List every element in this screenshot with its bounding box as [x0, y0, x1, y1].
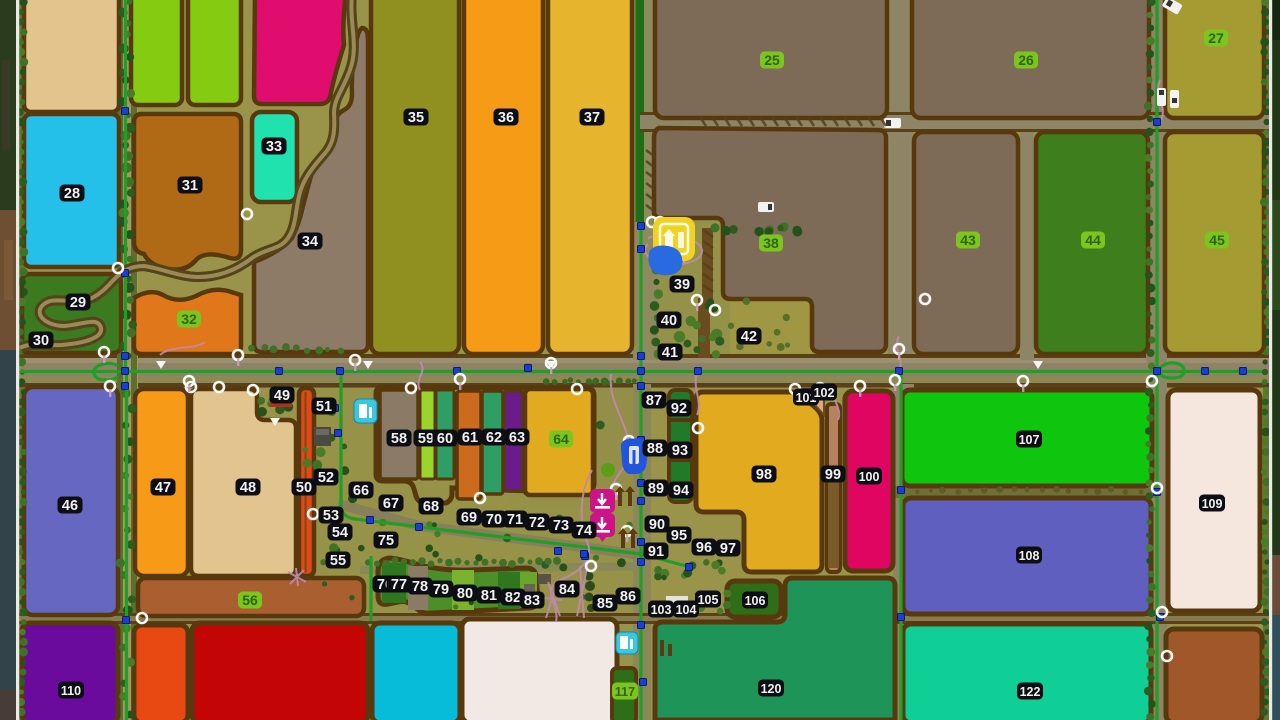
- svg-text:90: 90: [649, 517, 665, 533]
- svg-text:55: 55: [330, 553, 346, 569]
- svg-text:61: 61: [462, 430, 478, 446]
- svg-text:49: 49: [274, 388, 290, 404]
- svg-text:122: 122: [1020, 685, 1041, 699]
- svg-text:31: 31: [182, 178, 198, 194]
- svg-text:87: 87: [646, 393, 662, 409]
- svg-text:78: 78: [412, 579, 428, 595]
- svg-text:64: 64: [553, 431, 569, 447]
- svg-text:66: 66: [353, 483, 369, 499]
- svg-text:34: 34: [302, 234, 318, 250]
- svg-text:79: 79: [433, 582, 449, 598]
- svg-text:51: 51: [316, 399, 332, 415]
- svg-text:110: 110: [61, 684, 81, 698]
- svg-text:106: 106: [745, 594, 766, 608]
- svg-text:83: 83: [524, 593, 540, 609]
- svg-text:68: 68: [423, 499, 439, 515]
- svg-text:27: 27: [1208, 30, 1224, 46]
- svg-text:58: 58: [391, 431, 407, 447]
- svg-text:85: 85: [597, 596, 613, 612]
- svg-text:73: 73: [553, 518, 569, 534]
- svg-text:60: 60: [437, 431, 453, 447]
- svg-text:94: 94: [673, 483, 689, 499]
- svg-text:50: 50: [296, 480, 312, 496]
- svg-text:35: 35: [408, 110, 424, 126]
- svg-text:32: 32: [181, 311, 197, 327]
- svg-text:70: 70: [486, 512, 502, 528]
- svg-text:29: 29: [70, 295, 86, 311]
- svg-text:36: 36: [498, 110, 514, 126]
- svg-text:30: 30: [33, 333, 49, 349]
- svg-text:105: 105: [698, 593, 719, 607]
- svg-text:97: 97: [720, 541, 736, 557]
- svg-text:69: 69: [461, 510, 477, 526]
- svg-text:45: 45: [1209, 232, 1225, 248]
- svg-text:41: 41: [662, 345, 678, 361]
- svg-text:75: 75: [378, 533, 394, 549]
- svg-text:40: 40: [661, 313, 677, 329]
- svg-text:86: 86: [620, 589, 636, 605]
- svg-text:63: 63: [509, 430, 525, 446]
- svg-text:120: 120: [761, 682, 782, 696]
- svg-text:104: 104: [676, 603, 697, 617]
- svg-text:99: 99: [825, 467, 841, 483]
- svg-text:26: 26: [1018, 52, 1034, 68]
- svg-text:37: 37: [584, 110, 600, 126]
- svg-text:46: 46: [62, 498, 78, 514]
- svg-text:33: 33: [266, 139, 282, 155]
- svg-text:92: 92: [671, 401, 687, 417]
- svg-text:88: 88: [647, 441, 663, 457]
- svg-text:54: 54: [332, 525, 348, 541]
- svg-text:72: 72: [529, 515, 545, 531]
- svg-text:108: 108: [1019, 549, 1040, 563]
- svg-text:77: 77: [391, 577, 407, 593]
- svg-text:98: 98: [756, 467, 772, 483]
- svg-text:103: 103: [651, 603, 672, 617]
- svg-text:43: 43: [960, 232, 976, 248]
- svg-text:28: 28: [64, 186, 80, 202]
- svg-text:91: 91: [648, 544, 664, 560]
- svg-text:117: 117: [615, 685, 635, 699]
- svg-text:52: 52: [318, 470, 334, 486]
- svg-text:62: 62: [486, 430, 502, 446]
- svg-text:47: 47: [155, 480, 171, 496]
- svg-text:80: 80: [457, 586, 473, 602]
- svg-text:59: 59: [418, 431, 434, 447]
- svg-text:53: 53: [323, 508, 339, 524]
- svg-text:107: 107: [1019, 433, 1040, 447]
- svg-text:71: 71: [507, 512, 523, 528]
- svg-text:67: 67: [383, 496, 399, 512]
- svg-text:84: 84: [559, 582, 575, 598]
- svg-text:93: 93: [672, 443, 688, 459]
- svg-text:39: 39: [674, 277, 690, 293]
- svg-text:100: 100: [859, 470, 880, 484]
- svg-text:38: 38: [763, 235, 779, 251]
- svg-text:81: 81: [481, 588, 497, 604]
- svg-text:42: 42: [741, 329, 757, 345]
- svg-text:96: 96: [696, 540, 712, 556]
- svg-text:89: 89: [648, 481, 664, 497]
- svg-text:74: 74: [576, 523, 592, 539]
- svg-text:25: 25: [764, 52, 780, 68]
- svg-text:82: 82: [505, 590, 521, 606]
- svg-text:48: 48: [240, 480, 256, 496]
- svg-text:95: 95: [671, 528, 687, 544]
- svg-text:102: 102: [814, 386, 835, 400]
- svg-text:109: 109: [1202, 497, 1223, 511]
- svg-text:56: 56: [242, 592, 258, 608]
- svg-text:44: 44: [1085, 232, 1101, 248]
